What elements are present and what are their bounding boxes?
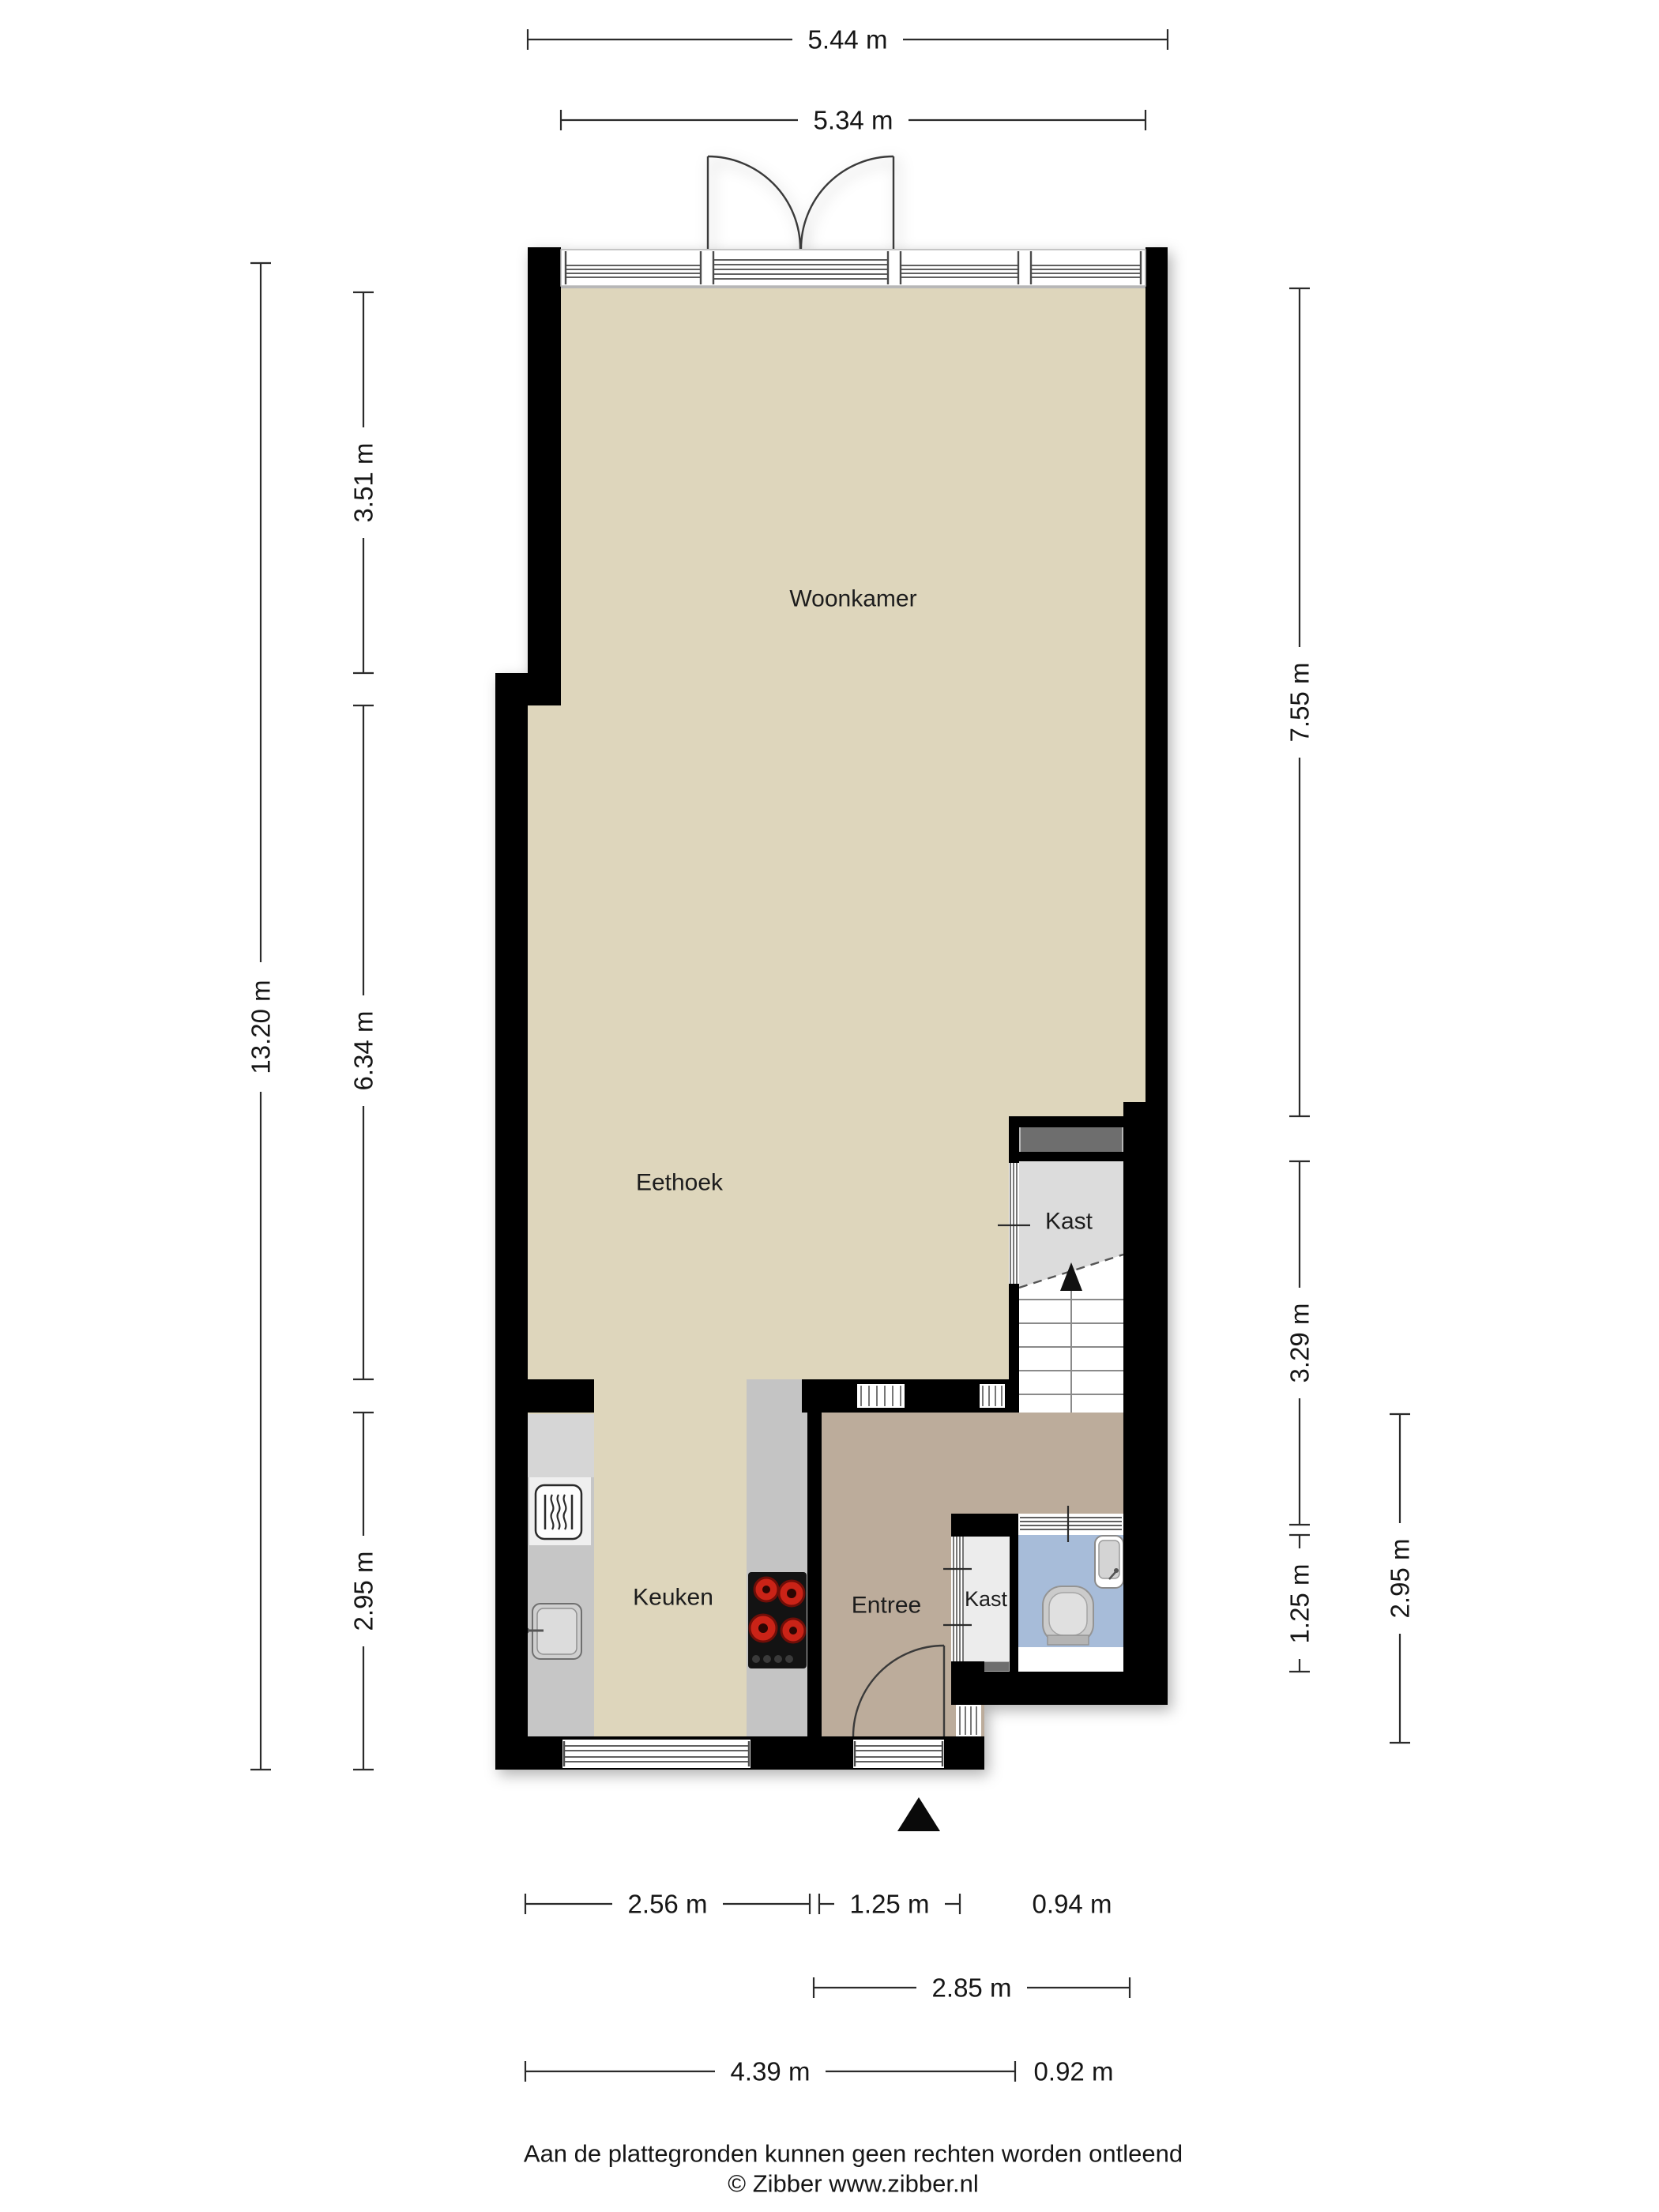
room-label-entree: Entree [852, 1593, 921, 1619]
svg-text:13.20 m: 13.20 m [246, 980, 276, 1074]
wall-left-lower [495, 673, 528, 1770]
hand-basin-icon [1095, 1536, 1123, 1588]
dim-left-eethoek: 6.34 m [346, 705, 381, 1379]
wall-kast-small-right [1010, 1514, 1018, 1672]
svg-text:2.95 m: 2.95 m [349, 1552, 378, 1631]
room-label-woonkamer: Woonkamer [789, 586, 916, 612]
wall-stairwell-left-upper [1009, 1116, 1019, 1163]
wall-kitchen-entree [807, 1413, 822, 1736]
svg-text:2.95 m: 2.95 m [1386, 1539, 1415, 1619]
svg-text:4.39 m: 4.39 m [731, 2057, 811, 2086]
dim-left-woonkamer: 3.51 m [346, 292, 381, 673]
room-label-kast-small: Kast [965, 1587, 1008, 1611]
svg-text:1.25 m: 1.25 m [850, 1890, 930, 1919]
wall-stairwell-left-lower [1009, 1284, 1019, 1413]
footer-disclaimer: Aan de plattegronden kunnen geen rechten… [524, 2140, 1183, 2168]
room-label-keuken: Keuken [633, 1585, 713, 1611]
dim-bottom-entree: 1.25 m [819, 1887, 960, 1921]
wall-stair-lining [1123, 1102, 1145, 1705]
counter-island [747, 1379, 807, 1736]
dim-right-stairwell: 3.29 m [1282, 1161, 1317, 1525]
svg-text:0.94 m: 0.94 m [1033, 1890, 1112, 1919]
floor-woonkamer-left [528, 705, 561, 1116]
dim-right-toilet: 1.25 m [1282, 1535, 1317, 1672]
floor-eethoek [528, 1116, 1009, 1379]
room-label-kast-large: Kast [1045, 1209, 1093, 1235]
double-door-icon [708, 156, 893, 249]
dim-top-inner: 5.34 m [561, 103, 1145, 137]
room-label-eethoek: Eethoek [636, 1170, 724, 1196]
wall-kast-small-top [951, 1514, 1018, 1537]
svg-text:6.34 m: 6.34 m [349, 1011, 378, 1091]
svg-text:7.55 m: 7.55 m [1285, 663, 1315, 743]
sink-icon [523, 1604, 581, 1659]
recess-side-window [956, 1705, 981, 1736]
floor-woonkamer [561, 288, 1145, 1116]
svg-text:5.34 m: 5.34 m [814, 106, 893, 135]
dim-right-lower-outer: 2.95 m [1382, 1414, 1417, 1743]
entrance-arrow-icon [897, 1797, 940, 1831]
wall-closet-shelf-edge [1009, 1152, 1123, 1161]
kitchen-window [562, 1740, 750, 1768]
closet-shelf-icon [1021, 1127, 1122, 1152]
wall-toilet-bottom [984, 1672, 1168, 1705]
svg-text:0.92 m: 0.92 m [1034, 2057, 1114, 2086]
floor-entree-hall-top [822, 1413, 1123, 1514]
svg-text:1.25 m: 1.25 m [1285, 1564, 1315, 1644]
dim-bottom-overall-right: 0.92 m [1018, 2054, 1129, 2089]
dim-bottom-keuken: 2.56 m [525, 1887, 810, 1921]
floor-plan-building [495, 156, 1168, 1770]
wall-kast-small-bottom [951, 1661, 984, 1705]
svg-text:3.29 m: 3.29 m [1285, 1303, 1315, 1383]
dim-left-overall: 13.20 m [243, 263, 278, 1770]
floor-entree-hall [822, 1514, 951, 1736]
footer: Aan de plattegronden kunnen geen rechten… [524, 2140, 1183, 2198]
cooktop-icon [748, 1572, 807, 1668]
counter-left-top [528, 1414, 594, 1477]
entree-door-threshold [853, 1740, 944, 1768]
toilet-icon [1043, 1586, 1093, 1645]
toilet-floor-strip [1018, 1647, 1123, 1672]
wall-kitchen-stub [495, 1379, 594, 1413]
dim-left-keuken: 2.95 m [346, 1413, 381, 1770]
dim-right-woonkamer: 7.55 m [1282, 288, 1317, 1116]
dim-bottom-toilet: 0.94 m [1017, 1887, 1127, 1921]
dim-top-outer: 5.44 m [528, 22, 1168, 57]
floor-plan-page: Woonkamer Eethoek Keuken Entree Kast Kas… [0, 0, 1659, 2212]
svg-text:3.51 m: 3.51 m [349, 443, 378, 523]
dim-bottom-overall-left: 4.39 m [525, 2054, 1015, 2089]
oven-icon [536, 1485, 581, 1539]
wall-left-upper [528, 247, 561, 705]
svg-text:5.44 m: 5.44 m [808, 25, 888, 55]
svg-text:2.85 m: 2.85 m [932, 1973, 1012, 2003]
footer-credit: © Zibber www.zibber.nl [728, 2170, 978, 2198]
floor-plan-canvas: Woonkamer Eethoek Keuken Entree Kast Kas… [0, 0, 1659, 2212]
top-window-band [561, 250, 1145, 286]
svg-text:2.56 m: 2.56 m [628, 1890, 708, 1919]
dim-bottom-entree-overall: 2.85 m [814, 1970, 1130, 2005]
wall-stairwell-top [1009, 1116, 1168, 1127]
wall-right [1145, 247, 1168, 1705]
